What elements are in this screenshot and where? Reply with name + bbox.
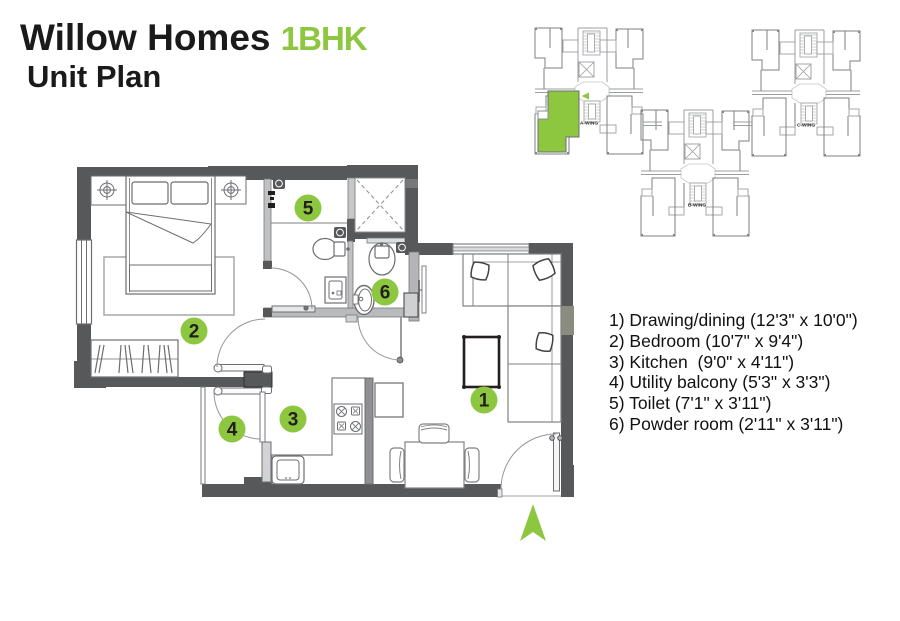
svg-text:5: 5 [303, 199, 314, 220]
svg-text:6: 6 [380, 283, 391, 304]
svg-text:C-WING: C-WING [797, 123, 815, 129]
svg-text:4: 4 [227, 420, 238, 441]
svg-text:3: 3 [288, 410, 299, 431]
svg-text:A-WING: A-WING [580, 121, 598, 127]
svg-text:1: 1 [479, 391, 490, 412]
svg-text:B-WING: B-WING [688, 203, 706, 209]
svg-text:2: 2 [189, 322, 200, 343]
